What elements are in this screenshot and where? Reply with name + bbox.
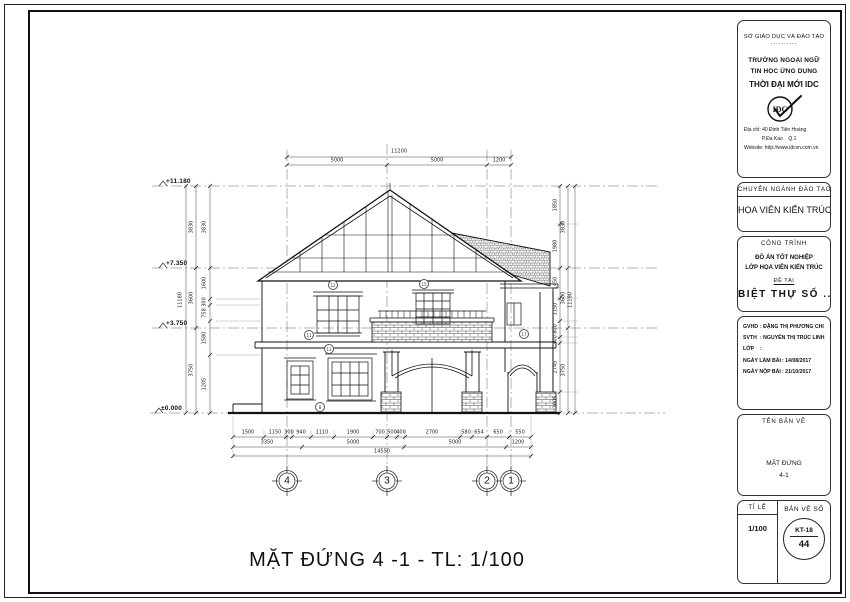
project-line1: ĐỒ ÁN TỐT NGHIỆP (738, 254, 830, 264)
elevation-drawing (145, 140, 670, 505)
address-label: Địa chỉ (744, 127, 759, 133)
dim-label: 2745 (554, 361, 559, 374)
dim-label: 1850 (554, 199, 559, 212)
dim-label: 1110 (316, 431, 329, 436)
sheet-label: BẢN VẼ SỐ (778, 506, 830, 513)
dim-label: 1200 (493, 159, 506, 164)
school-name-line1: TRƯỜNG NGOẠI NGỮ (738, 56, 830, 67)
scale-sheet-box: TỈ LỆ 1/100 BẢN VẼ SỐ KT-18 44 (737, 500, 831, 584)
dim-label: 300 (203, 297, 208, 307)
drawing-sheet: +11.180 +7.350 +3.750 ±0.000 11200 5000 … (0, 0, 850, 602)
date-start-value: : 14/08/2017 (782, 356, 811, 367)
project-box: CÔNG TRÌNH ĐỒ ÁN TỐT NGHIỆP LỚP HỌA VIÊN… (737, 236, 831, 312)
school-box: SỞ GIÁO DỤC VÀ ĐÀO TẠO .......... TRƯỜNG… (737, 20, 831, 178)
dim-label: 758 (203, 308, 208, 318)
balcony-parapet (372, 322, 492, 342)
advisor-label: GVHD (743, 322, 758, 333)
part-tag: 11 (304, 330, 314, 340)
level-label: +3.750 (166, 320, 187, 327)
grid-lines (287, 144, 511, 468)
student-label: SVTH (743, 333, 758, 344)
part-tag: 12 (328, 280, 338, 290)
scale-value: 1/100 (738, 524, 777, 533)
website-value: : http://www.idcvn.com.vn (762, 145, 818, 151)
class-label: LỚP (743, 344, 758, 355)
dim-label: 3350 (261, 441, 274, 446)
dim-label: 2700 (426, 431, 439, 436)
grid-bubble-4: 4 (284, 476, 290, 487)
sheet-number-stamp: KT-18 44 (783, 518, 825, 560)
dim-label: 1205 (203, 378, 208, 391)
window-lower-large (325, 354, 377, 401)
idc-logo-icon: IDC (764, 93, 804, 125)
dim-label: 550 (515, 431, 525, 436)
dim-label: 3600 (562, 292, 567, 305)
dim-label: 800 (554, 324, 559, 334)
dim-label: 400 (396, 431, 406, 436)
dim-label: 5000 (331, 159, 344, 164)
dim-label: 3750 (190, 364, 195, 377)
school-name-line3: THỜI ĐẠI MỚI IDC (738, 80, 830, 89)
address-line2: P.Đa Kao Q.1 (738, 135, 830, 144)
dim-label: 300 (554, 335, 559, 345)
dim-label: 11180 (569, 292, 574, 308)
dim-label: 580 (461, 431, 471, 436)
dim-label: 3600 (190, 292, 195, 305)
dim-label: 3750 (562, 364, 567, 377)
drawing-caption: MẶT ĐỨNG 4 -1 - TL: 1/100 (249, 549, 525, 572)
dim-label: 1600 (203, 277, 208, 290)
dim-label: 5000 (449, 441, 462, 446)
sheet-code: KT-18 (790, 527, 818, 537)
topic-label: ĐỀ TÀI (738, 278, 830, 284)
divider-dots: .......... (738, 40, 830, 46)
level-label: ±0.000 (161, 405, 182, 412)
dim-label: 3830 (190, 221, 195, 234)
part-tag: 13 (324, 344, 334, 354)
drawing-name-line1: MẶT ĐỨNG (738, 458, 830, 470)
dim-label: 1900 (347, 431, 360, 436)
roof-gable (258, 190, 521, 281)
level-label: +7.350 (166, 260, 187, 267)
student-name: : NGUYỄN THỊ TRÚC LINH (760, 333, 825, 344)
level-label: +11.180 (166, 178, 191, 185)
topic-name: BIỆT THỰ SỐ ... (738, 289, 830, 300)
dim-label: 1200 (512, 441, 525, 446)
dim-label: 1500 (242, 431, 255, 436)
date-end-value: : 21/10/2017 (782, 367, 811, 378)
dim-label: 11180 (179, 292, 184, 308)
level-markers (155, 181, 167, 413)
date-end-label: NGÀY NỘP BÀI (743, 367, 780, 378)
major-header: CHUYÊN NGÀNH ĐÀO TẠO (738, 183, 830, 197)
project-header: CÔNG TRÌNH (738, 237, 830, 250)
dim-label: 14550 (374, 450, 390, 455)
part-tag: 15 (419, 279, 429, 289)
arch (392, 350, 472, 413)
dim-label: 11200 (391, 150, 407, 155)
class-value: : (760, 344, 762, 355)
part-tag: 8 (315, 402, 325, 412)
date-start-label: NGÀY LÀM BÀI (743, 356, 780, 367)
grid-bubble-2: 2 (484, 476, 490, 487)
annex-vent (507, 303, 521, 325)
school-name-line2: TIN HỌC ỨNG DỤNG (738, 67, 830, 78)
advisor-name: : ĐẶNG THỊ PHƯƠNG CHI (760, 322, 824, 333)
dim-label: 5000 (347, 441, 360, 446)
dim-label: 3830 (203, 221, 208, 234)
dim-label: 654 (474, 431, 484, 436)
major-box: CHUYÊN NGÀNH ĐÀO TẠO HỌA VIÊN KIẾN TRÚC (737, 182, 831, 232)
part-tag: 17 (519, 329, 529, 339)
dim-label: 1150 (554, 303, 559, 316)
dim-label: 1450 (554, 277, 559, 290)
dim-label: 1580 (203, 332, 208, 345)
dim-label: 5000 (431, 159, 444, 164)
dim-label: 3830 (562, 221, 567, 234)
project-line2: LỚP HỌA VIÊN KIẾN TRÚC (738, 264, 830, 274)
window-upper-left (313, 292, 363, 336)
website-label: Website (744, 145, 762, 151)
drawing-name-header: TÊN BẢN VẼ (738, 415, 830, 428)
address-value: : 40 Đinh Tiên Hoàng (759, 127, 806, 133)
dim-label: 1150 (269, 431, 282, 436)
dim-label: 700 (375, 431, 385, 436)
dim-label: 1980 (554, 240, 559, 253)
grid-bubble-3: 3 (384, 476, 390, 487)
drawing-name-line2: 4-1 (738, 470, 830, 482)
major-name: HỌA VIÊN KIẾN TRÚC (738, 205, 830, 215)
sheet-number: 44 (784, 539, 824, 550)
balcony-door (412, 290, 454, 324)
scale-label: TỈ LỆ (738, 501, 777, 515)
dim-label: 1005 (554, 396, 559, 409)
window-lower-small (284, 358, 316, 400)
grid-bubble-1: 1 (508, 476, 514, 487)
info-box: GVHD: ĐẶNG THỊ PHƯƠNG CHI SVTH: NGUYỄN T… (737, 316, 831, 410)
dim-label: 650 (493, 431, 503, 436)
dim-label: 940 (296, 431, 306, 436)
drawing-name-box: TÊN BẢN VẼ MẶT ĐỨNG 4-1 (737, 414, 831, 496)
dim-label: 300 (284, 431, 294, 436)
